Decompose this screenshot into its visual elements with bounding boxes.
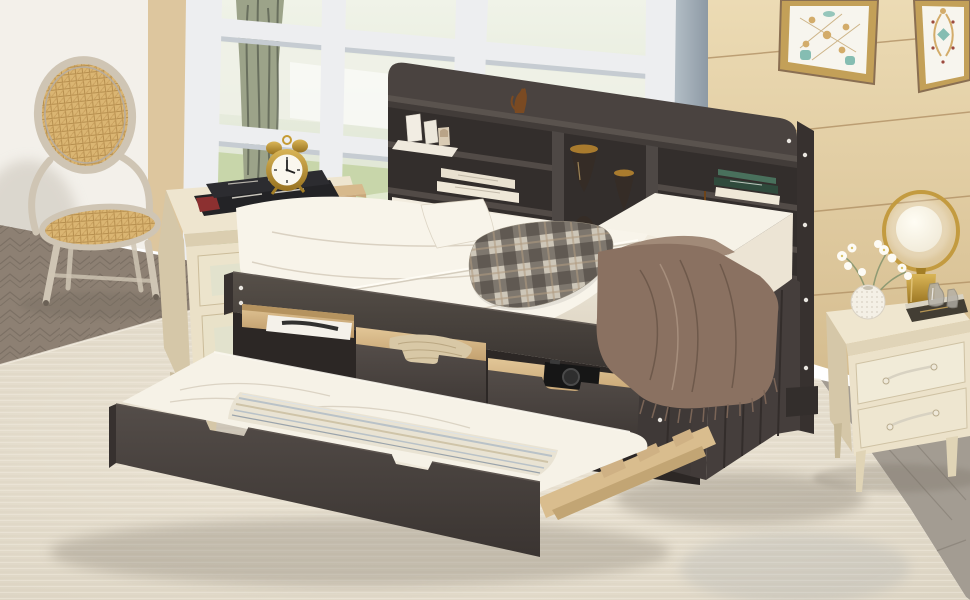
mini-box [406, 114, 422, 142]
artwork-frame-1 [779, 0, 878, 84]
camera-lens [563, 369, 579, 385]
mini-box [424, 120, 438, 144]
product-photo [0, 0, 970, 600]
accent-pin [239, 286, 243, 290]
textured-vase [851, 285, 885, 319]
nightstand-leg [946, 436, 958, 477]
lamp-globe [896, 206, 942, 252]
accent-pin [658, 418, 662, 422]
artwork-frame-2 [914, 0, 970, 92]
trundle-shadow [50, 518, 670, 586]
bedroom-scene [0, 0, 970, 600]
back-leg [786, 386, 818, 417]
